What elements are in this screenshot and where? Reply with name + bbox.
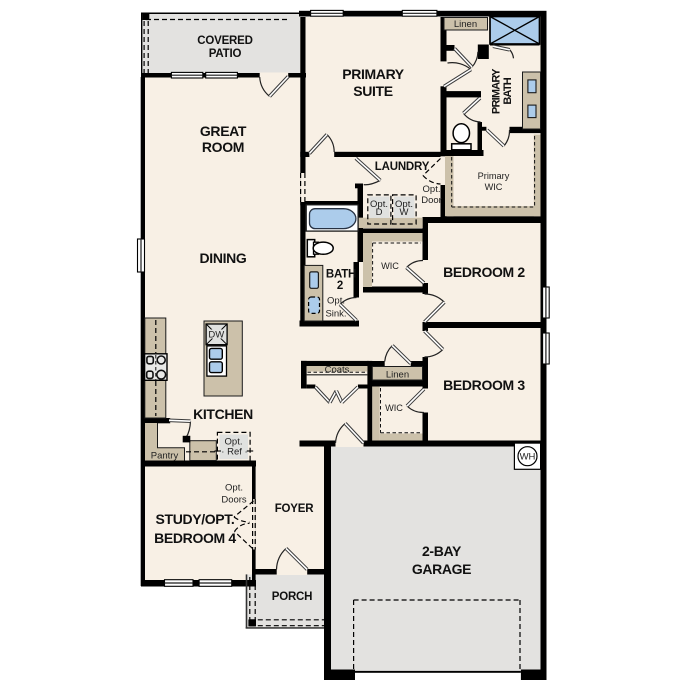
svg-text:PORCH: PORCH (272, 591, 313, 603)
svg-text:LAUNDRY: LAUNDRY (375, 161, 430, 173)
svg-text:BEDROOM 3: BEDROOM 3 (443, 377, 525, 393)
svg-text:BEDROOM 2: BEDROOM 2 (443, 264, 525, 280)
svg-text:D: D (376, 207, 383, 218)
svg-text:Primary: Primary (478, 171, 510, 181)
svg-text:PRIMARY: PRIMARY (490, 68, 502, 114)
svg-text:WIC: WIC (381, 261, 399, 271)
svg-text:Linen: Linen (454, 19, 477, 30)
svg-text:KITCHEN: KITCHEN (193, 406, 253, 422)
svg-text:Doors: Doors (221, 495, 247, 506)
svg-text:Door: Door (421, 195, 442, 206)
svg-text:Opt.: Opt. (225, 483, 243, 494)
svg-text:PATIO: PATIO (209, 48, 242, 60)
svg-text:Pantry: Pantry (151, 451, 179, 462)
svg-text:COVERED: COVERED (197, 35, 252, 47)
svg-text:PRIMARY: PRIMARY (342, 66, 405, 82)
svg-text:BATH: BATH (326, 269, 356, 281)
svg-text:WH: WH (520, 452, 536, 463)
svg-text:WIC: WIC (485, 182, 503, 192)
svg-text:2: 2 (337, 280, 343, 292)
svg-text:· Ref ·: · Ref · (221, 447, 247, 458)
svg-text:Coats: Coats (325, 365, 350, 376)
svg-text:2-BAY: 2-BAY (422, 543, 462, 559)
svg-text:Opt.: Opt. (423, 184, 441, 195)
svg-text:Linen: Linen (386, 370, 409, 381)
svg-text:WIC: WIC (385, 403, 403, 413)
svg-text:STUDY/OPT.: STUDY/OPT. (156, 511, 235, 527)
svg-text:DINING: DINING (200, 250, 247, 266)
svg-text:FOYER: FOYER (275, 503, 315, 515)
svg-text:W: W (400, 207, 409, 218)
svg-text:Opt.: Opt. (327, 296, 345, 307)
svg-text:GARAGE: GARAGE (412, 561, 471, 577)
svg-text:BATH: BATH (502, 77, 514, 104)
svg-text:DW: DW (208, 330, 224, 341)
svg-text:SUITE: SUITE (353, 83, 392, 99)
svg-text:ROOM: ROOM (202, 139, 244, 155)
svg-text:BEDROOM 4: BEDROOM 4 (154, 530, 236, 546)
svg-text:Sink.: Sink. (325, 309, 346, 320)
svg-text:GREAT: GREAT (200, 123, 247, 139)
